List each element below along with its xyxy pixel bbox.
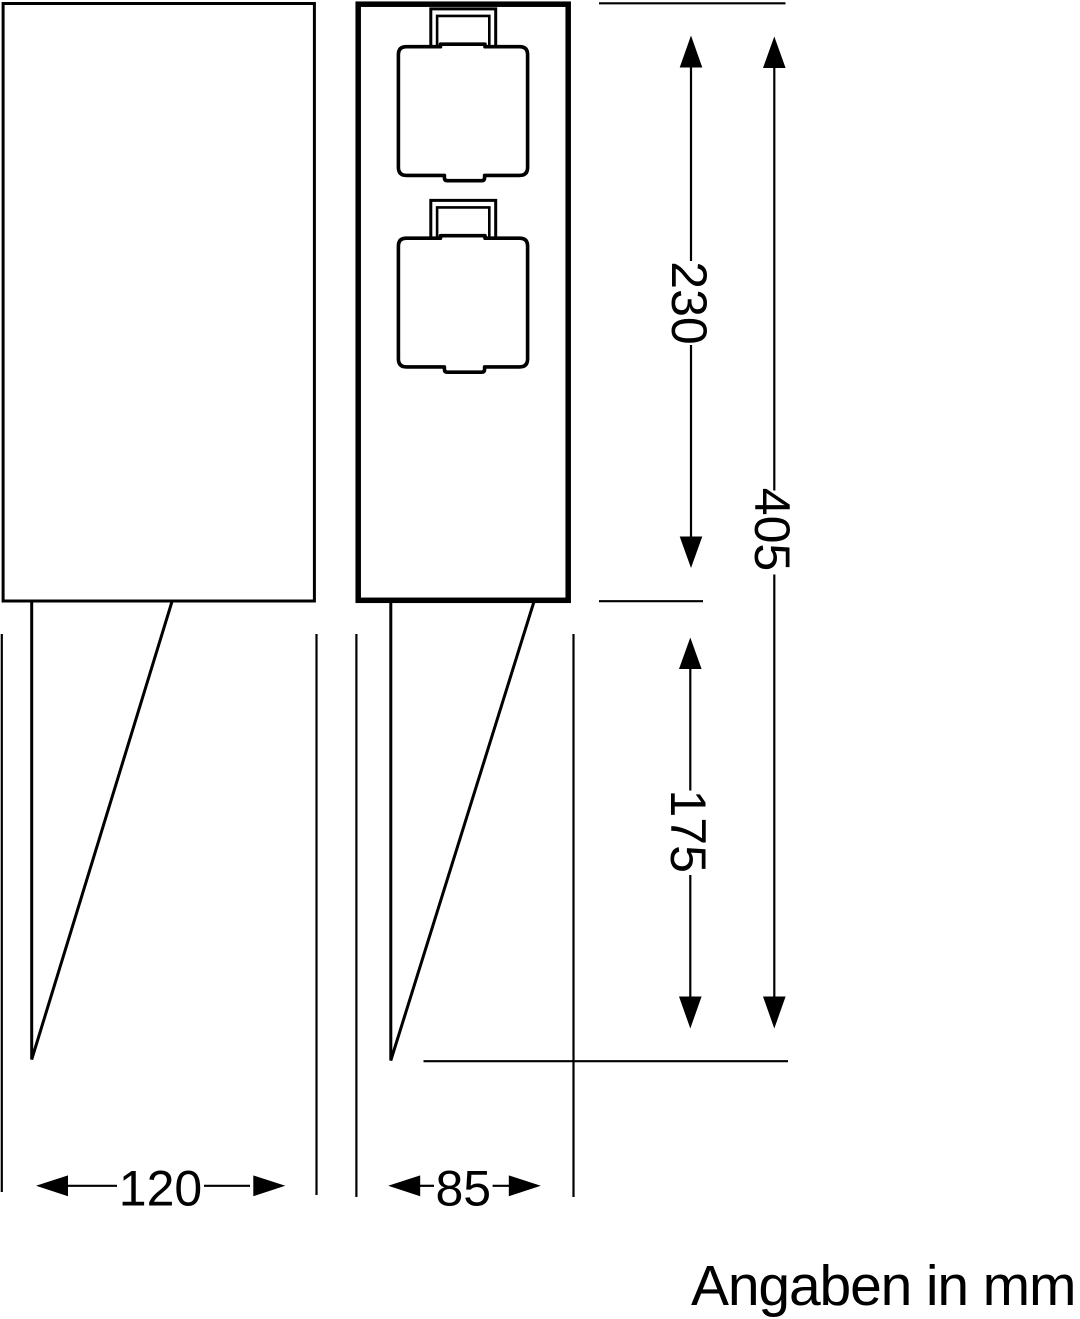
svg-text:175: 175 <box>660 789 716 872</box>
svg-text:120: 120 <box>119 1160 202 1216</box>
svg-text:85: 85 <box>435 1160 491 1216</box>
svg-text:405: 405 <box>744 488 800 571</box>
svg-text:230: 230 <box>661 261 717 344</box>
svg-text:Angaben in mm: Angaben in mm <box>691 1254 1075 1318</box>
